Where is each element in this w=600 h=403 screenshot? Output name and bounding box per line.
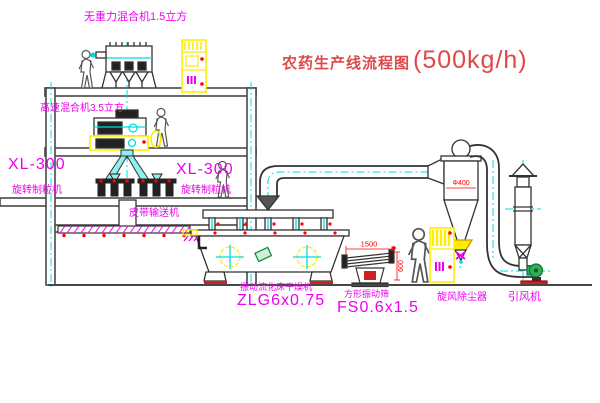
granulator-left [96,174,134,196]
label-cyclone: 旋风除尘器 [437,293,487,303]
gravity-free-mixer [91,42,156,88]
label-dryer-name: 振动流化床干燥机 [240,283,312,292]
title-capacity: (500kg/h) [413,46,528,75]
square-vibrating-sieve: 1500 600 [342,240,405,287]
control-cabinet-bottom [430,228,454,282]
sieve-width-dimension: 600 [398,260,405,272]
dryer-exhaust-duct [260,166,428,196]
exhaust-stack [509,164,537,270]
label-granulator-left-model: XL-300 [8,157,66,173]
person-icon [409,229,430,282]
label-granulator-left-name: 旋转制粒机 [12,186,62,196]
label-high-speed-mixer: 高速混合机3.5立方 [40,104,124,114]
control-cabinet-top [182,40,206,92]
label-gravity-mixer: 无重力混合机1.5立方 [84,12,187,23]
label-belt-conveyor: 皮带输送机 [129,209,179,219]
label-granulator-right-model: XL-300 [176,162,234,178]
cyclone-diameter-dimension: Φ400 [452,180,469,187]
label-dryer-model: ZLG6x0.75 [237,293,325,309]
label-sieve-name: 方形振动筛 [344,290,389,299]
belt-conveyor [58,226,190,237]
title-text: 农药生产线流程图 [282,52,410,73]
fluid-bed-dryer [183,196,349,284]
sieve-length-dimension: 1500 [361,240,378,249]
high-speed-mixer [90,110,161,150]
process-flow-diagram: 1500 600 Φ400 [0,0,600,403]
diagram-title: 农药生产线流程图 (500kg/h) [282,46,528,75]
label-sieve-model: FS0.6x1.5 [337,300,419,316]
label-granulator-right-name: 旋转制粒机 [181,186,231,196]
label-fan: 引风机 [508,292,541,303]
